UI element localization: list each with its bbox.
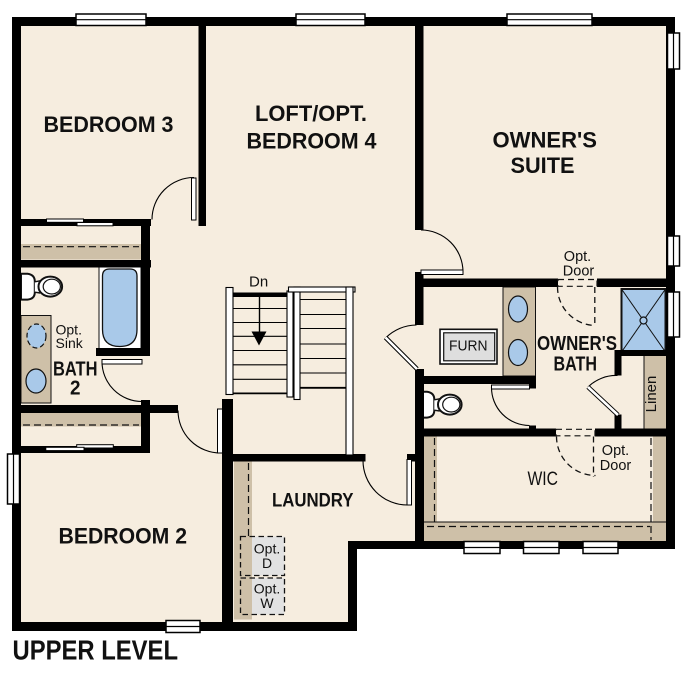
- svg-text:BEDROOM 3: BEDROOM 3: [44, 112, 174, 137]
- svg-text:Linen: Linen: [643, 376, 660, 413]
- svg-text:FURN: FURN: [449, 338, 488, 355]
- svg-text:WIC: WIC: [528, 469, 559, 490]
- svg-text:Opt.: Opt.: [602, 443, 629, 459]
- svg-text:LAUNDRY: LAUNDRY: [272, 491, 354, 512]
- svg-text:SUITE: SUITE: [511, 153, 575, 178]
- svg-text:OWNER'S: OWNER'S: [537, 333, 617, 355]
- svg-text:Door: Door: [600, 458, 632, 474]
- svg-text:Door: Door: [563, 263, 595, 279]
- svg-text:W: W: [260, 595, 274, 611]
- svg-text:BEDROOM 4: BEDROOM 4: [247, 129, 377, 154]
- svg-text:LOFT/OPT.: LOFT/OPT.: [255, 101, 367, 126]
- svg-text:BEDROOM 2: BEDROOM 2: [59, 524, 188, 549]
- svg-text:Dn: Dn: [249, 274, 268, 291]
- svg-text:OWNER'S: OWNER'S: [493, 128, 598, 153]
- svg-text:2: 2: [70, 378, 81, 400]
- svg-text:D: D: [262, 555, 272, 571]
- svg-text:UPPER LEVEL: UPPER LEVEL: [13, 635, 179, 666]
- svg-text:Sink: Sink: [56, 335, 84, 351]
- svg-text:BATH: BATH: [554, 354, 598, 376]
